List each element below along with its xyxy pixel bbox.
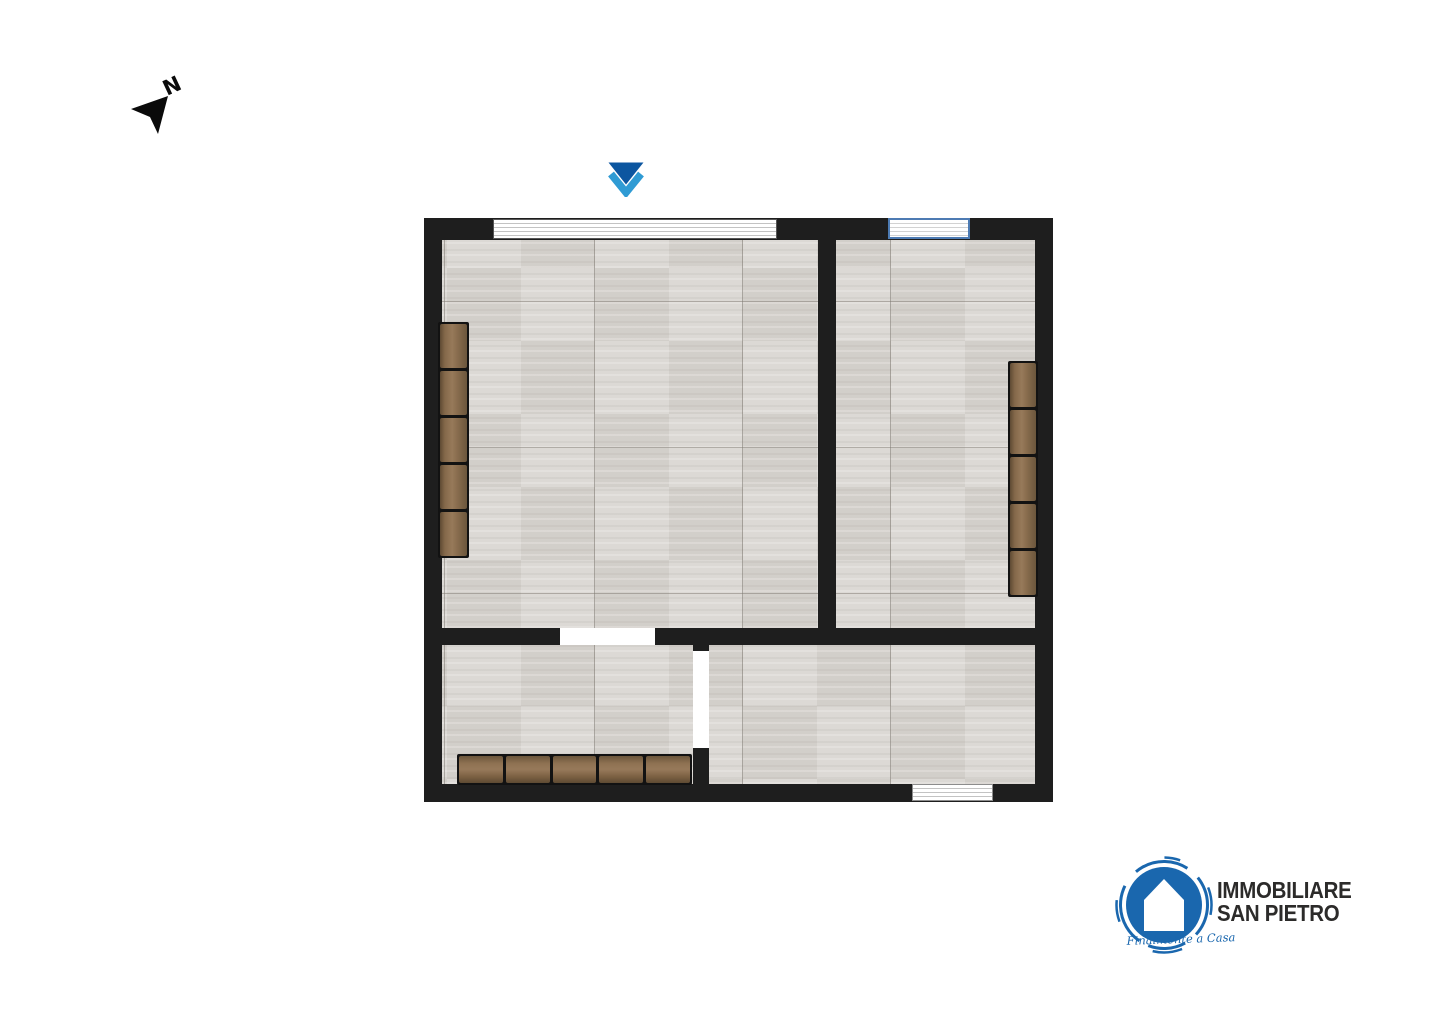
radiator-segment	[1010, 457, 1036, 501]
radiator-segment	[459, 756, 503, 783]
window-top-left	[493, 219, 777, 239]
radiator-segment	[1010, 551, 1036, 595]
radiator-segment	[440, 371, 467, 415]
door-opening-hall	[560, 628, 655, 645]
agency-name-line1: IMMOBILIARE	[1217, 879, 1352, 902]
wall-interior-horizontal	[442, 628, 1036, 645]
radiator-segment	[440, 324, 467, 368]
radiator-segment	[440, 418, 467, 462]
radiator-right-wall	[1008, 361, 1038, 597]
wall-interior-vertical-top	[818, 240, 836, 628]
compass-arrow-icon	[131, 96, 168, 134]
window-bottom-right	[912, 784, 993, 801]
compass-n-label: N	[159, 72, 185, 101]
north-compass-icon: N	[118, 72, 190, 140]
entrance-arrow-icon	[607, 161, 645, 197]
agency-logo-badge	[1106, 850, 1222, 966]
radiator-segment	[440, 512, 467, 556]
agency-name: IMMOBILIARE SAN PIETRO	[1217, 879, 1352, 924]
radiator-segment	[1010, 410, 1036, 454]
radiator-segment	[599, 756, 643, 783]
agency-name-line2: SAN PIETRO	[1217, 902, 1352, 925]
wall-interior-vertical-bottom	[693, 748, 709, 784]
radiator-segment	[506, 756, 550, 783]
radiator-segment	[1010, 504, 1036, 548]
tile-floor	[442, 240, 1036, 784]
floor-plan	[424, 218, 1053, 802]
window-top-right-blue	[888, 218, 970, 239]
radiator-left-wall	[438, 322, 469, 558]
floor-plan-page: N	[0, 0, 1440, 1017]
radiator-segment	[646, 756, 690, 783]
radiator-segment	[1010, 363, 1036, 407]
door-opening-lower-rooms	[693, 651, 709, 748]
radiator-segment	[553, 756, 597, 783]
radiator-segment	[440, 465, 467, 509]
radiator-bottom-wall	[457, 754, 692, 785]
